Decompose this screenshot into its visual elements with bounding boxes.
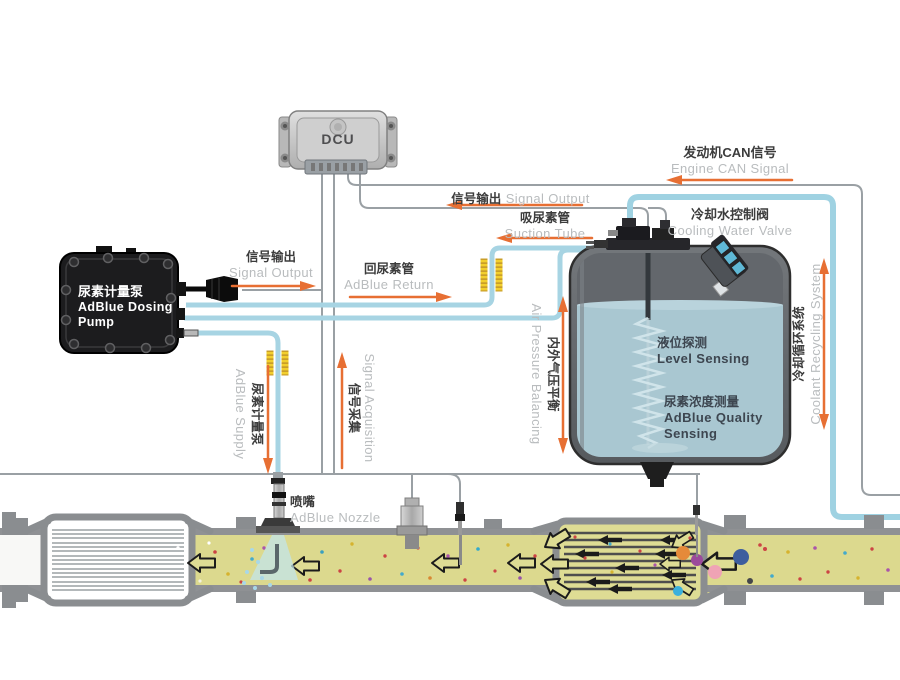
pump-label: 尿素计量泵 AdBlue Dosing Pump (78, 284, 173, 330)
nozzle-label: 喷嘴 AdBlue Nozzle (290, 495, 380, 526)
adblue-supply-label: 尿素计量泵 AdBlue Supply (232, 369, 264, 459)
particle-dark (747, 578, 753, 584)
tank-drain (640, 462, 674, 479)
diagram-graphics (0, 0, 900, 680)
cooling-water-valve-label: 冷却水控制阀 Cooling Water Valve (655, 207, 805, 239)
heater-icon (480, 258, 488, 292)
air-pressure-balancing-label: 内外气压平衡 Air Pressure Balancing (528, 303, 560, 444)
temp-sensor-wire (448, 474, 460, 502)
exhaust-pipe (0, 512, 900, 608)
pump-label-en1: AdBlue Dosing (78, 300, 173, 315)
engine-can-signal-label: 发动机CAN信号 Engine CAN Signal (655, 145, 805, 177)
particle-pink (708, 565, 722, 579)
level-sensing-label: 液位探测 Level Sensing (657, 336, 750, 367)
heater-icon (281, 350, 289, 376)
pump-signal-output-label: 信号输出 Signal Output (225, 250, 317, 281)
tank-signal-output-label: 信号输出 Signal Output (448, 189, 593, 209)
suction-tube-label: 吸尿素管 Suction Tube (492, 211, 598, 242)
dcu-label: DCU (289, 131, 387, 147)
particle-cyan (673, 586, 683, 596)
pump-label-en2: Pump (78, 315, 173, 330)
adblue-return-label: 回尿素管 AdBlue Return (336, 262, 442, 293)
coolant-recycling-label: 冷却循环系统 Coolant Recycling System (792, 263, 824, 424)
dpf-canister (26, 517, 210, 603)
pump-label-cn: 尿素计量泵 (78, 284, 173, 300)
particle-navy (733, 549, 749, 565)
scr-adblue-system-diagram: DCU 尿素计量泵 AdBlue Dosing Pump 信号输出 Signal… (0, 0, 900, 680)
particle-orange (676, 546, 690, 560)
adblue-quality-label: 尿素浓度测量 AdBlue Quality Sensing (664, 395, 763, 442)
heater-icon (495, 258, 503, 292)
signal-acquisition-label: Signal Acquisition 信号采集 (345, 353, 377, 462)
